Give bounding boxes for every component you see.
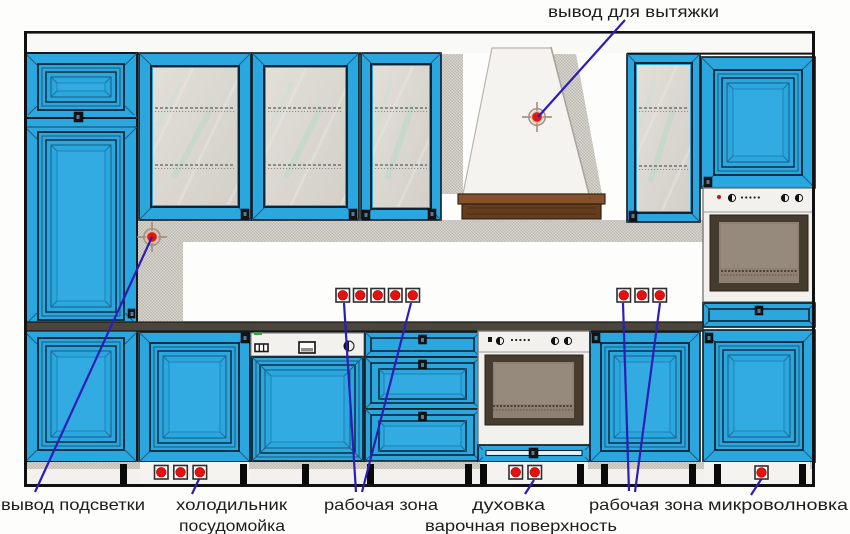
svg-text:посудомойка: посудомойка xyxy=(179,518,285,534)
svg-text:рабочая зона: рабочая зона xyxy=(324,497,438,514)
svg-text:микроволновка: микроволновка xyxy=(708,497,848,514)
svg-text:вывод для вытяжки: вывод для вытяжки xyxy=(548,4,719,21)
svg-text:духовка: духовка xyxy=(472,497,545,514)
svg-text:рабочая зона: рабочая зона xyxy=(589,497,703,514)
svg-text:холодильник: холодильник xyxy=(176,497,288,514)
svg-text:вывод подсветки: вывод подсветки xyxy=(1,497,145,514)
svg-text:варочная поверхность: варочная поверхность xyxy=(425,518,617,534)
